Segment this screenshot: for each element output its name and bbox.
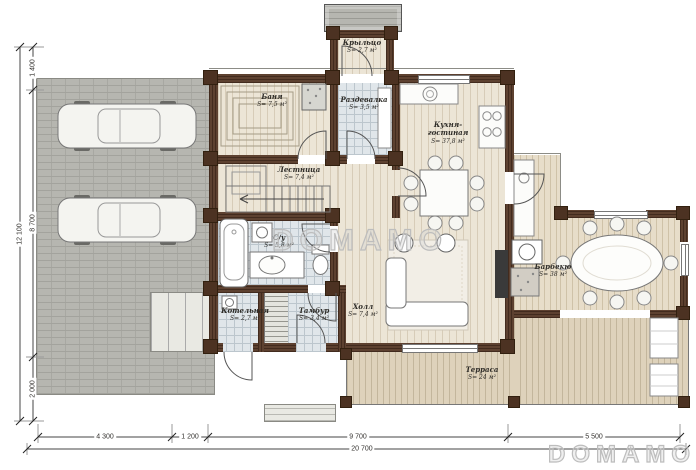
dim-left-total: 12 100 — [17, 221, 24, 246]
watermark-center: DOMAMO — [272, 224, 448, 258]
room-label-stairs: ЛестницаS= 7,4 м² — [278, 166, 321, 182]
dim-left-1: 1 400 — [30, 57, 37, 79]
room-label-dressing: РаздевалкаS= 3,5 м² — [340, 96, 387, 112]
dim-bottom-1: 4 300 — [94, 434, 116, 441]
room-label-porch: КрыльцоS= 2,7 м² — [343, 39, 381, 55]
watermark-corner: DOMAMO — [548, 441, 696, 469]
room-label-terrace: ТеррасаS= 24 м² — [466, 366, 499, 382]
room-label-bbq: БарбекюS= 38 м² — [535, 263, 572, 279]
room-label-boiler: КотельнаяS= 2,7 м² — [221, 307, 269, 323]
dim-bottom-2: 1 200 — [179, 434, 201, 441]
dim-bottom-3: 9 700 — [347, 434, 369, 441]
dim-bottom-4: 5 500 — [583, 434, 605, 441]
dim-left-3: 2 000 — [30, 378, 37, 400]
room-label-vestibule: ТамбурS= 3,4 м² — [299, 307, 330, 323]
dim-bottom-total: 20 700 — [349, 446, 374, 453]
room-label-hall: ХоллS= 7,4 м² — [348, 303, 378, 319]
room-label-sauna: БаняS= 7,5 м² — [257, 93, 287, 109]
room-label-kitchen: Кухня-гостинаяS= 37,8 м² — [423, 121, 473, 145]
floor-plan-canvas: 4 300 1 200 9 700 5 500 20 700 1 400 8 7… — [0, 0, 696, 470]
dim-left-2: 8 700 — [30, 212, 37, 234]
